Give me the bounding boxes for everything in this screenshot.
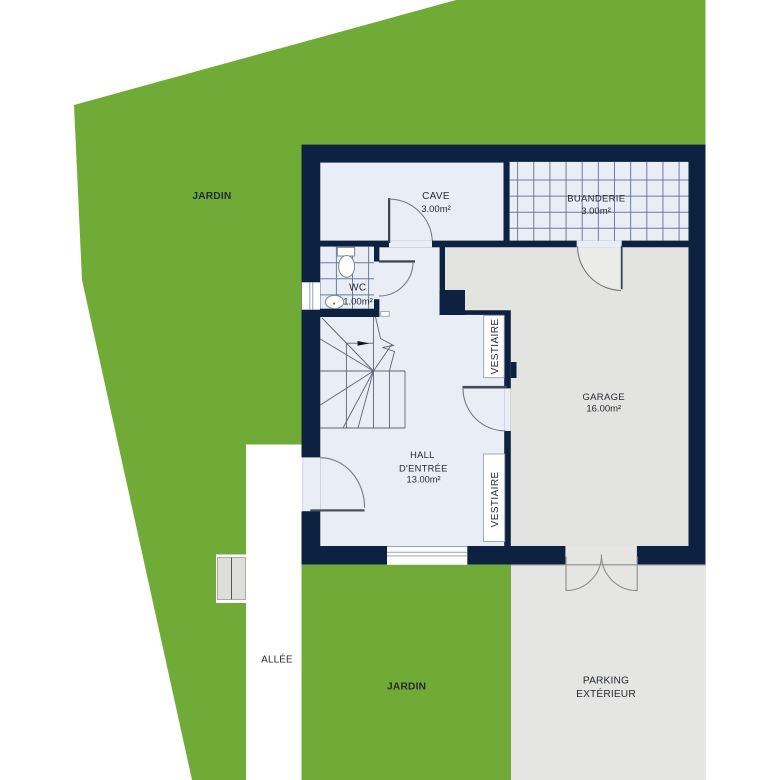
svg-text:GARAGE: GARAGE: [582, 392, 624, 403]
svg-text:3.00m²: 3.00m²: [581, 206, 611, 217]
svg-text:16.00m²: 16.00m²: [586, 404, 621, 415]
svg-text:13.00m²: 13.00m²: [407, 475, 441, 485]
svg-text:1.00m²: 1.00m²: [343, 297, 373, 308]
svg-text:JARDIN: JARDIN: [387, 682, 426, 693]
svg-text:D'ENTRÉE: D'ENTRÉE: [399, 464, 448, 474]
svg-text:ALLÉE: ALLÉE: [261, 655, 293, 666]
svg-text:BUANDERIE: BUANDERIE: [567, 194, 625, 205]
svg-text:3.00m²: 3.00m²: [421, 204, 451, 215]
svg-text:VESTIAIRE: VESTIAIRE: [490, 319, 501, 375]
svg-text:JARDIN: JARDIN: [192, 191, 231, 202]
svg-text:HALL: HALL: [410, 450, 434, 460]
svg-text:VESTIAIRE: VESTIAIRE: [490, 471, 501, 527]
svg-text:CAVE: CAVE: [422, 191, 450, 202]
svg-text:EXTÉRIEUR: EXTÉRIEUR: [576, 687, 636, 700]
svg-text:PARKING: PARKING: [583, 676, 629, 687]
svg-text:WC: WC: [349, 283, 366, 294]
